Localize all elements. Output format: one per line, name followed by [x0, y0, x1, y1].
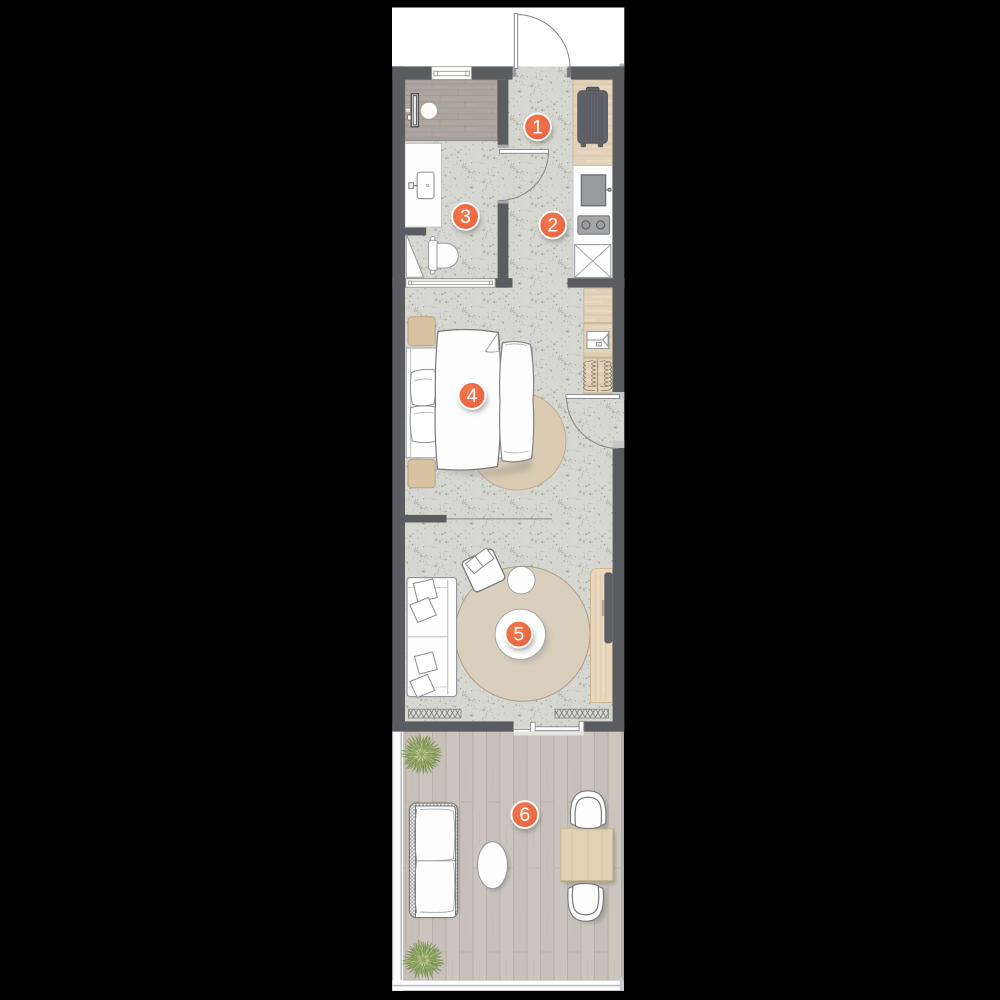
svg-text:2: 2	[547, 215, 558, 237]
svg-text:1: 1	[532, 116, 543, 138]
svg-text:5: 5	[513, 624, 524, 646]
svg-text:4: 4	[467, 385, 478, 407]
svg-text:3: 3	[460, 206, 471, 228]
svg-text:6: 6	[519, 804, 530, 826]
